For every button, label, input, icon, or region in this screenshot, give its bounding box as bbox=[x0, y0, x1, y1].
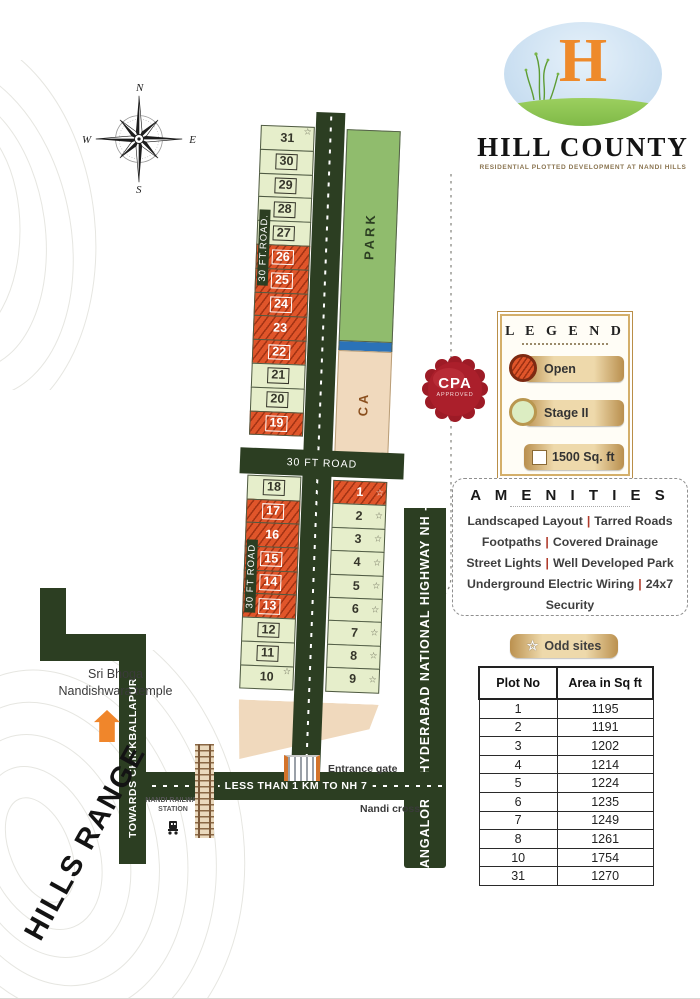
table-cell: 1191 bbox=[557, 718, 653, 737]
plot-number: 18 bbox=[263, 480, 285, 497]
plot-number: 1 bbox=[353, 486, 366, 500]
plot-number: 30 bbox=[275, 154, 297, 171]
plot-4: 4☆ bbox=[330, 550, 385, 576]
plot-number: 9 bbox=[346, 673, 359, 687]
table-cell: 1270 bbox=[557, 867, 653, 886]
logo-monogram: H bbox=[504, 30, 662, 92]
plot-31: 31☆ bbox=[260, 125, 315, 152]
plot-3: 3☆ bbox=[331, 527, 386, 553]
plot-number: 25 bbox=[271, 273, 293, 290]
plot-number: 31 bbox=[277, 131, 297, 146]
table-row: 21191 bbox=[479, 718, 653, 737]
plot-number: 5 bbox=[349, 579, 362, 593]
table-body: 1119521191312024121451224612357124981261… bbox=[479, 699, 653, 885]
plot-number: 27 bbox=[272, 225, 294, 242]
plot-20: 20 bbox=[250, 386, 305, 413]
odd-site-star-icon: ☆ bbox=[303, 127, 311, 137]
legend-item-stage2: Stage II bbox=[524, 400, 624, 426]
table-cell: 5 bbox=[479, 774, 557, 793]
plot-number: 17 bbox=[262, 503, 284, 520]
plot-number: 3 bbox=[351, 533, 364, 547]
plot-12: 12 bbox=[241, 617, 296, 644]
plot-number: 19 bbox=[265, 415, 287, 432]
plot-23: 23 bbox=[253, 315, 308, 342]
star-icon: ☆ bbox=[527, 638, 539, 654]
nh7-highway-label: BANGALORE - HYDERABAD NATIONAL HIGHWAY N… bbox=[418, 498, 432, 878]
plot-number: 14 bbox=[259, 574, 281, 591]
amenities-title: A M E N I T I E S bbox=[453, 487, 687, 504]
table-cell: 1214 bbox=[557, 755, 653, 774]
plot-6: 6☆ bbox=[328, 597, 383, 623]
temple-label-line1: Sri Bhoga bbox=[28, 666, 203, 683]
approach-road-label: LESS THAN 1 KM TO NH 7 bbox=[220, 780, 373, 792]
legend-item-1500sqft: 1500 Sq. ft bbox=[524, 444, 624, 470]
hill-icon bbox=[504, 98, 662, 126]
plot-number: 24 bbox=[270, 296, 292, 313]
temple-label: Sri Bhoga Nandishwara temple bbox=[28, 666, 203, 700]
amenities-separator: | bbox=[583, 514, 594, 528]
table-cell: 1235 bbox=[557, 792, 653, 811]
table-cell: 1754 bbox=[557, 848, 653, 867]
hill-county-logo: H HILL COUNTY RESIDENTIAL PLOTTED DEVELO… bbox=[470, 22, 696, 162]
compass-south-label: S bbox=[136, 184, 142, 196]
park-area: PARK bbox=[339, 129, 401, 343]
legend-box: L E G E N D Open Stage II 1500 Sq. ft bbox=[500, 314, 630, 476]
table-row: 71249 bbox=[479, 811, 653, 830]
compass-east-label: E bbox=[189, 134, 196, 146]
amenities-separator: | bbox=[541, 556, 552, 570]
table-cell: 1249 bbox=[557, 811, 653, 830]
legend-1500sqft-label: 1500 Sq. ft bbox=[552, 450, 615, 464]
layout-brochure-page: N E S W H HILL COUNTY RESIDENTIAL PLOTTE… bbox=[0, 0, 700, 999]
table-cell: 8 bbox=[479, 830, 557, 849]
plot-2: 2☆ bbox=[331, 503, 386, 529]
table-row: 311270 bbox=[479, 867, 653, 886]
odd-sites-badge: ☆ Odd sites bbox=[510, 634, 618, 658]
table-cell: 1195 bbox=[557, 699, 653, 718]
plot-number: 13 bbox=[258, 598, 280, 615]
plot-number: 8 bbox=[347, 650, 360, 664]
plot-number: 26 bbox=[272, 249, 294, 266]
amenities-list: Landscaped Layout|Tarred RoadsFootpaths|… bbox=[453, 511, 687, 615]
plot-number: 29 bbox=[274, 178, 296, 195]
cross-road-label: 30 FT ROAD bbox=[286, 456, 357, 471]
table-cell: 31 bbox=[479, 867, 557, 886]
table-row: 11195 bbox=[479, 699, 653, 718]
plot-21: 21 bbox=[251, 363, 306, 390]
amenities-separator: | bbox=[634, 577, 645, 591]
table-row: 101754 bbox=[479, 848, 653, 867]
amenities-line: Landscaped Layout|Tarred Roads bbox=[453, 511, 687, 532]
plot-number: 6 bbox=[349, 603, 362, 617]
plot-30: 30 bbox=[259, 149, 314, 176]
odd-site-star-icon: ☆ bbox=[371, 605, 379, 615]
site-plan: 31☆302928272625242322212019 181716151413… bbox=[230, 110, 405, 777]
stage2-swatch-icon bbox=[509, 398, 537, 426]
entrance-gate-icon bbox=[284, 755, 320, 781]
legend-title: L E G E N D bbox=[502, 324, 628, 340]
table-row: 41214 bbox=[479, 755, 653, 774]
compass-north-label: N bbox=[136, 82, 143, 94]
plot-17: 17 bbox=[246, 498, 301, 525]
logo-sky-ellipse: H bbox=[504, 22, 662, 126]
ca-label: CA bbox=[355, 391, 371, 416]
column-right-upper: PARK CA bbox=[334, 129, 401, 458]
plot-18: 18 bbox=[247, 475, 302, 502]
plot-24: 24 bbox=[254, 291, 309, 318]
hills-range-label: HILLS RANGE bbox=[19, 703, 180, 950]
table-cell: 1 bbox=[479, 699, 557, 718]
amenities-separator: | bbox=[541, 535, 552, 549]
plot-number: 11 bbox=[257, 645, 279, 662]
plot-number: 15 bbox=[260, 551, 282, 568]
odd-site-star-icon: ☆ bbox=[368, 675, 376, 685]
nandi-cross-label: Nandi cross bbox=[360, 803, 420, 815]
odd-site-star-icon: ☆ bbox=[369, 652, 377, 662]
odd-site-star-icon: ☆ bbox=[283, 667, 291, 677]
odd-site-star-icon: ☆ bbox=[370, 628, 378, 638]
plot-19: 19 bbox=[249, 410, 304, 437]
plot-number: 21 bbox=[267, 368, 289, 385]
table-cell: 6 bbox=[479, 792, 557, 811]
table-cell: 4 bbox=[479, 755, 557, 774]
seal-cpa-text: CPA bbox=[421, 375, 489, 392]
plot-1: 1☆ bbox=[332, 480, 387, 506]
table-row: 51224 bbox=[479, 774, 653, 793]
table-cell: 10 bbox=[479, 848, 557, 867]
park-label: PARK bbox=[361, 212, 378, 260]
odd-site-star-icon: ☆ bbox=[373, 558, 381, 568]
plot-number: 28 bbox=[273, 201, 295, 218]
temple-icon bbox=[94, 710, 120, 742]
legend-divider bbox=[522, 343, 608, 345]
table-row: 31202 bbox=[479, 737, 653, 756]
open-swatch-icon bbox=[509, 354, 537, 382]
amenities-box: A M E N I T I E S Landscaped Layout|Tarr… bbox=[452, 478, 688, 616]
logo-title: HILL COUNTY bbox=[470, 132, 696, 163]
plot-number: 16 bbox=[262, 528, 282, 543]
table-cell: 3 bbox=[479, 737, 557, 756]
table-row: 61235 bbox=[479, 792, 653, 811]
plot-9: 9☆ bbox=[325, 667, 380, 693]
plot-number: 4 bbox=[350, 556, 363, 570]
legend-item-open: Open bbox=[524, 356, 624, 382]
plot-5: 5☆ bbox=[329, 573, 384, 599]
plot-8: 8☆ bbox=[326, 643, 381, 669]
odd-site-star-icon: ☆ bbox=[374, 535, 382, 545]
table-header-area: Area in Sq ft bbox=[557, 667, 653, 699]
plot-number: 20 bbox=[266, 392, 288, 409]
table-cell: 1202 bbox=[557, 737, 653, 756]
logo-tagline: RESIDENTIAL PLOTTED DEVELOPMENT AT NANDI… bbox=[470, 164, 696, 171]
odd-site-star-icon: ☆ bbox=[372, 582, 380, 592]
temple-label-line2: Nandishwara temple bbox=[28, 683, 203, 700]
plot-11: 11 bbox=[240, 640, 295, 667]
plot-number: 2 bbox=[352, 509, 365, 523]
amenities-divider bbox=[510, 506, 630, 507]
plot-number: 22 bbox=[268, 344, 290, 361]
entrance-gate-label: Entrance gate bbox=[328, 763, 397, 775]
odd-site-star-icon: ☆ bbox=[376, 488, 384, 498]
amenities-line: Security bbox=[453, 595, 687, 616]
odd-sites-label: Odd sites bbox=[544, 639, 601, 653]
legend-open-label: Open bbox=[544, 362, 576, 376]
odd-site-star-icon: ☆ bbox=[375, 511, 383, 521]
cpa-approved-seal: CPA APPROVED bbox=[421, 355, 489, 423]
amenities-line: Underground Electric Wiring|24x7 bbox=[453, 574, 687, 595]
plot-7: 7☆ bbox=[327, 620, 382, 646]
table-cell: 7 bbox=[479, 811, 557, 830]
railway-crossing bbox=[195, 744, 214, 838]
plot-area-table: Plot No Area in Sq ft 111952119131202412… bbox=[478, 666, 654, 886]
plot-number: 10 bbox=[256, 670, 276, 685]
plot-number: 23 bbox=[270, 321, 290, 336]
plot-10: 10☆ bbox=[239, 664, 294, 691]
compass-west-label: W bbox=[82, 134, 91, 146]
table-header-plot-no: Plot No bbox=[479, 667, 557, 699]
table-cell: 1224 bbox=[557, 774, 653, 793]
seal-approved-text: APPROVED bbox=[421, 392, 489, 398]
plot-column-right-lower: 1☆2☆3☆4☆5☆6☆7☆8☆9☆ bbox=[325, 481, 387, 693]
train-icon bbox=[165, 820, 181, 836]
compass-rose: N E S W bbox=[84, 84, 194, 194]
plot-number: 12 bbox=[257, 622, 279, 639]
square-swatch-icon bbox=[532, 450, 547, 465]
table-cell: 1261 bbox=[557, 830, 653, 849]
table-row: 81261 bbox=[479, 830, 653, 849]
legend-stage2-label: Stage II bbox=[544, 406, 588, 420]
table-cell: 2 bbox=[479, 718, 557, 737]
plot-number: 7 bbox=[348, 626, 361, 640]
compass-star-icon bbox=[94, 94, 184, 184]
amenities-line: Footpaths|Covered Drainage bbox=[453, 532, 687, 553]
plot-29: 29 bbox=[258, 172, 313, 199]
plot-22: 22 bbox=[252, 339, 307, 366]
amenities-line: Street Lights|Well Developed Park bbox=[453, 553, 687, 574]
ca-area: CA bbox=[334, 350, 392, 458]
